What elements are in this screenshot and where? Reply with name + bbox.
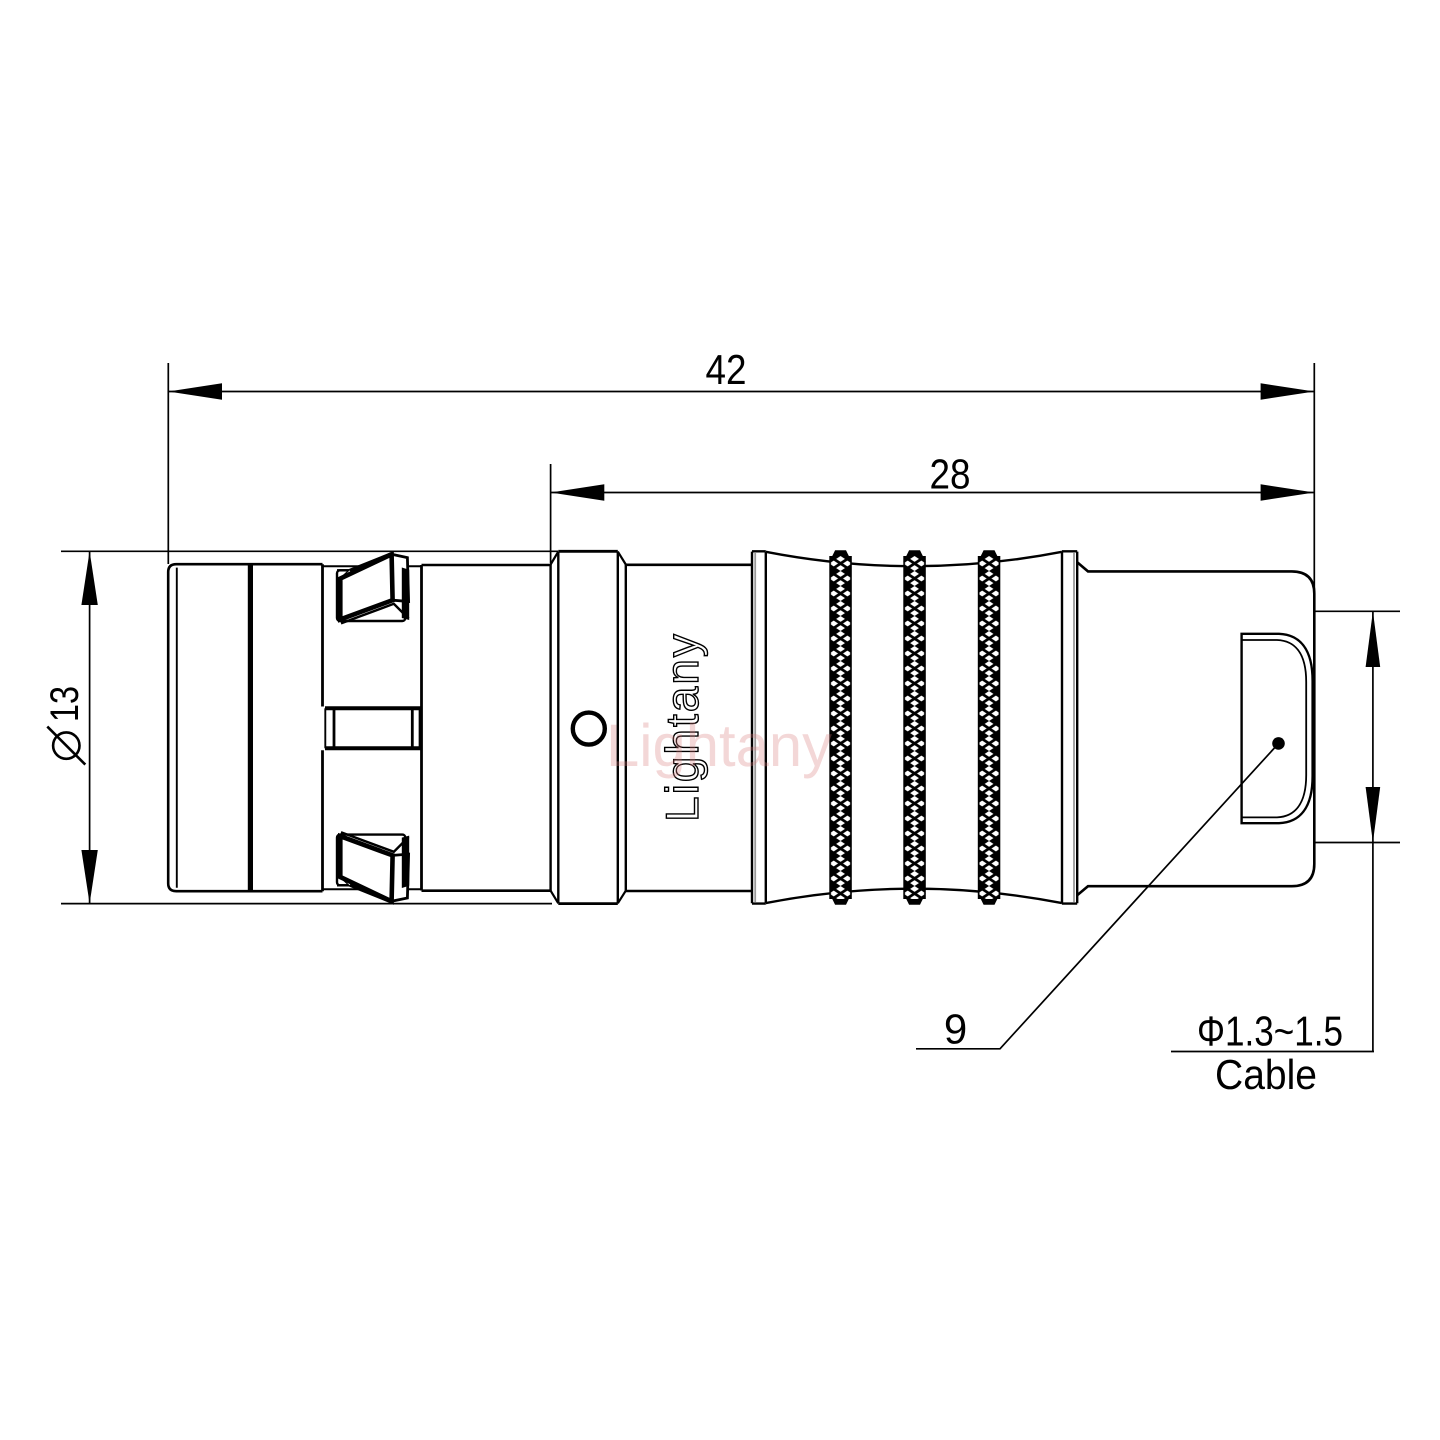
svg-text:Cable: Cable	[1215, 1051, 1317, 1098]
svg-text:28: 28	[930, 451, 971, 498]
svg-text:Lightany: Lightany	[606, 712, 832, 779]
svg-text:13: 13	[43, 686, 87, 722]
svg-text:9: 9	[944, 1006, 967, 1053]
svg-text:42: 42	[706, 346, 747, 393]
svg-text:Φ1.3~1.5: Φ1.3~1.5	[1197, 1008, 1343, 1055]
